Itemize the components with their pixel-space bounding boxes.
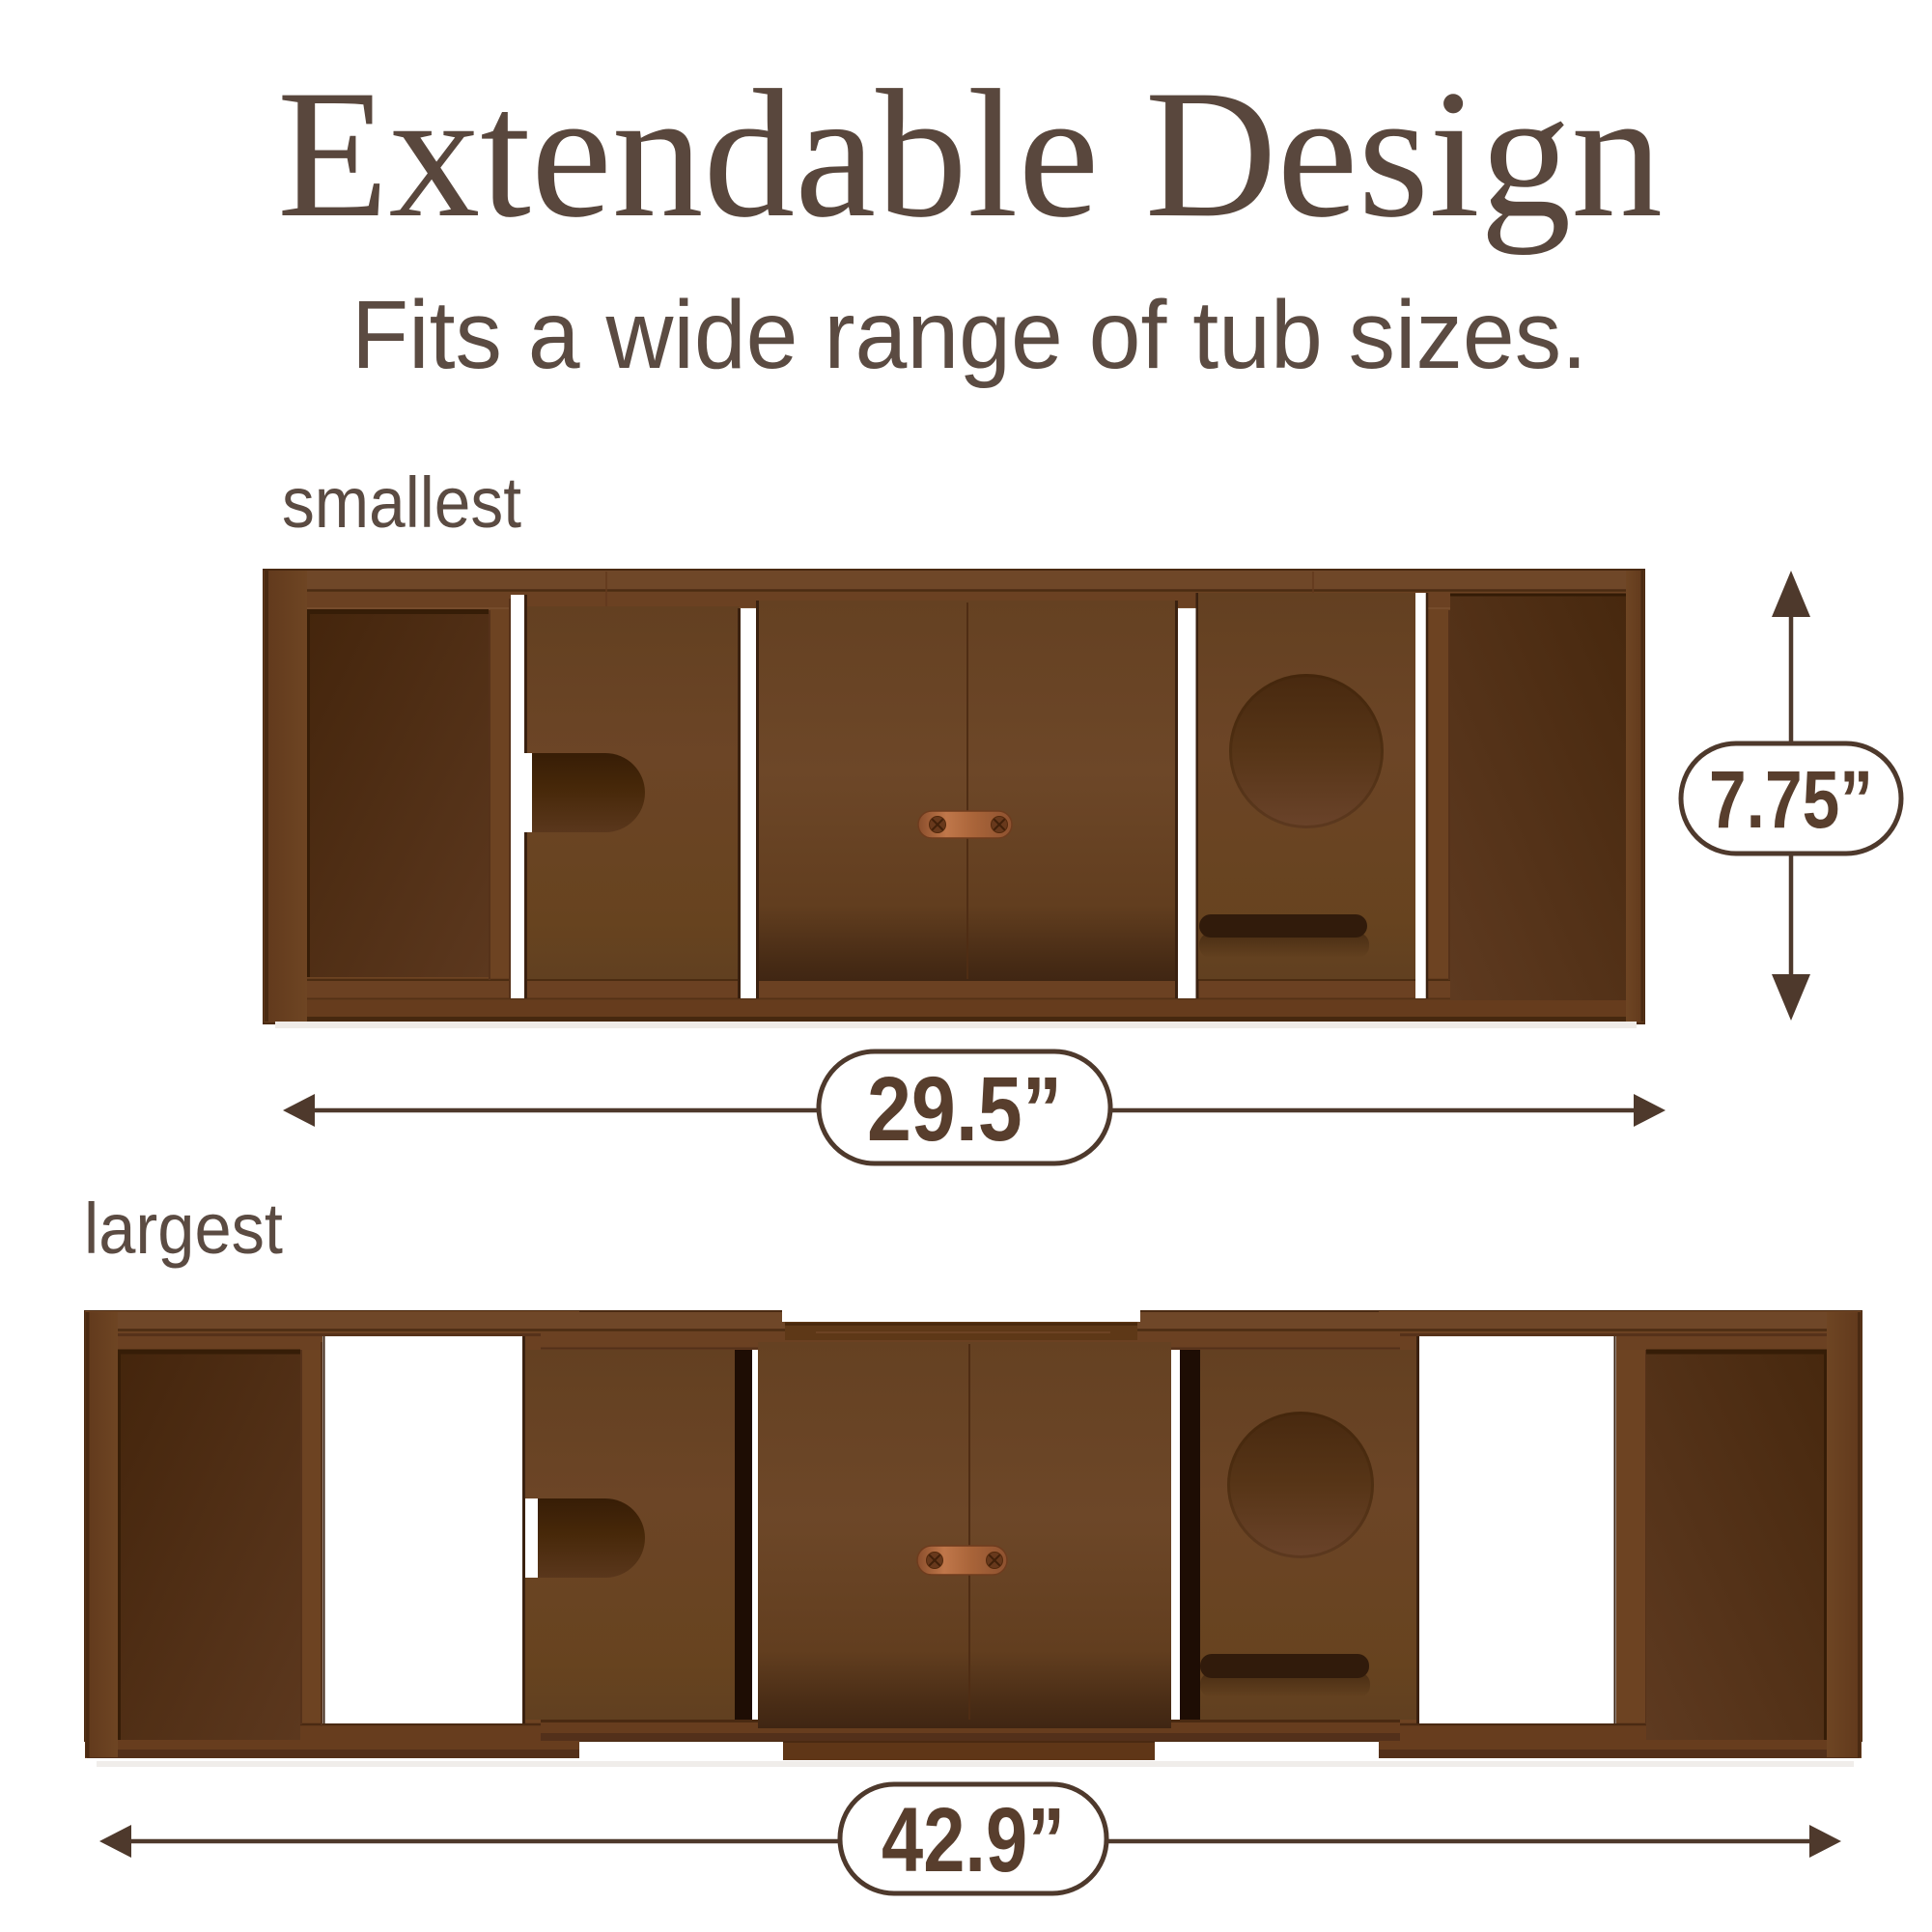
- svg-text:Fits a wide range of tub sizes: Fits a wide range of tub sizes.: [351, 281, 1587, 389]
- svg-text:largest: largest: [84, 1189, 283, 1269]
- svg-text:7.75”: 7.75”: [1709, 754, 1873, 845]
- svg-text:Extendable Design: Extendable Design: [277, 53, 1663, 256]
- svg-text:42.9”: 42.9”: [882, 1789, 1065, 1891]
- svg-text:29.5”: 29.5”: [867, 1058, 1062, 1161]
- svg-text:smallest: smallest: [282, 462, 521, 543]
